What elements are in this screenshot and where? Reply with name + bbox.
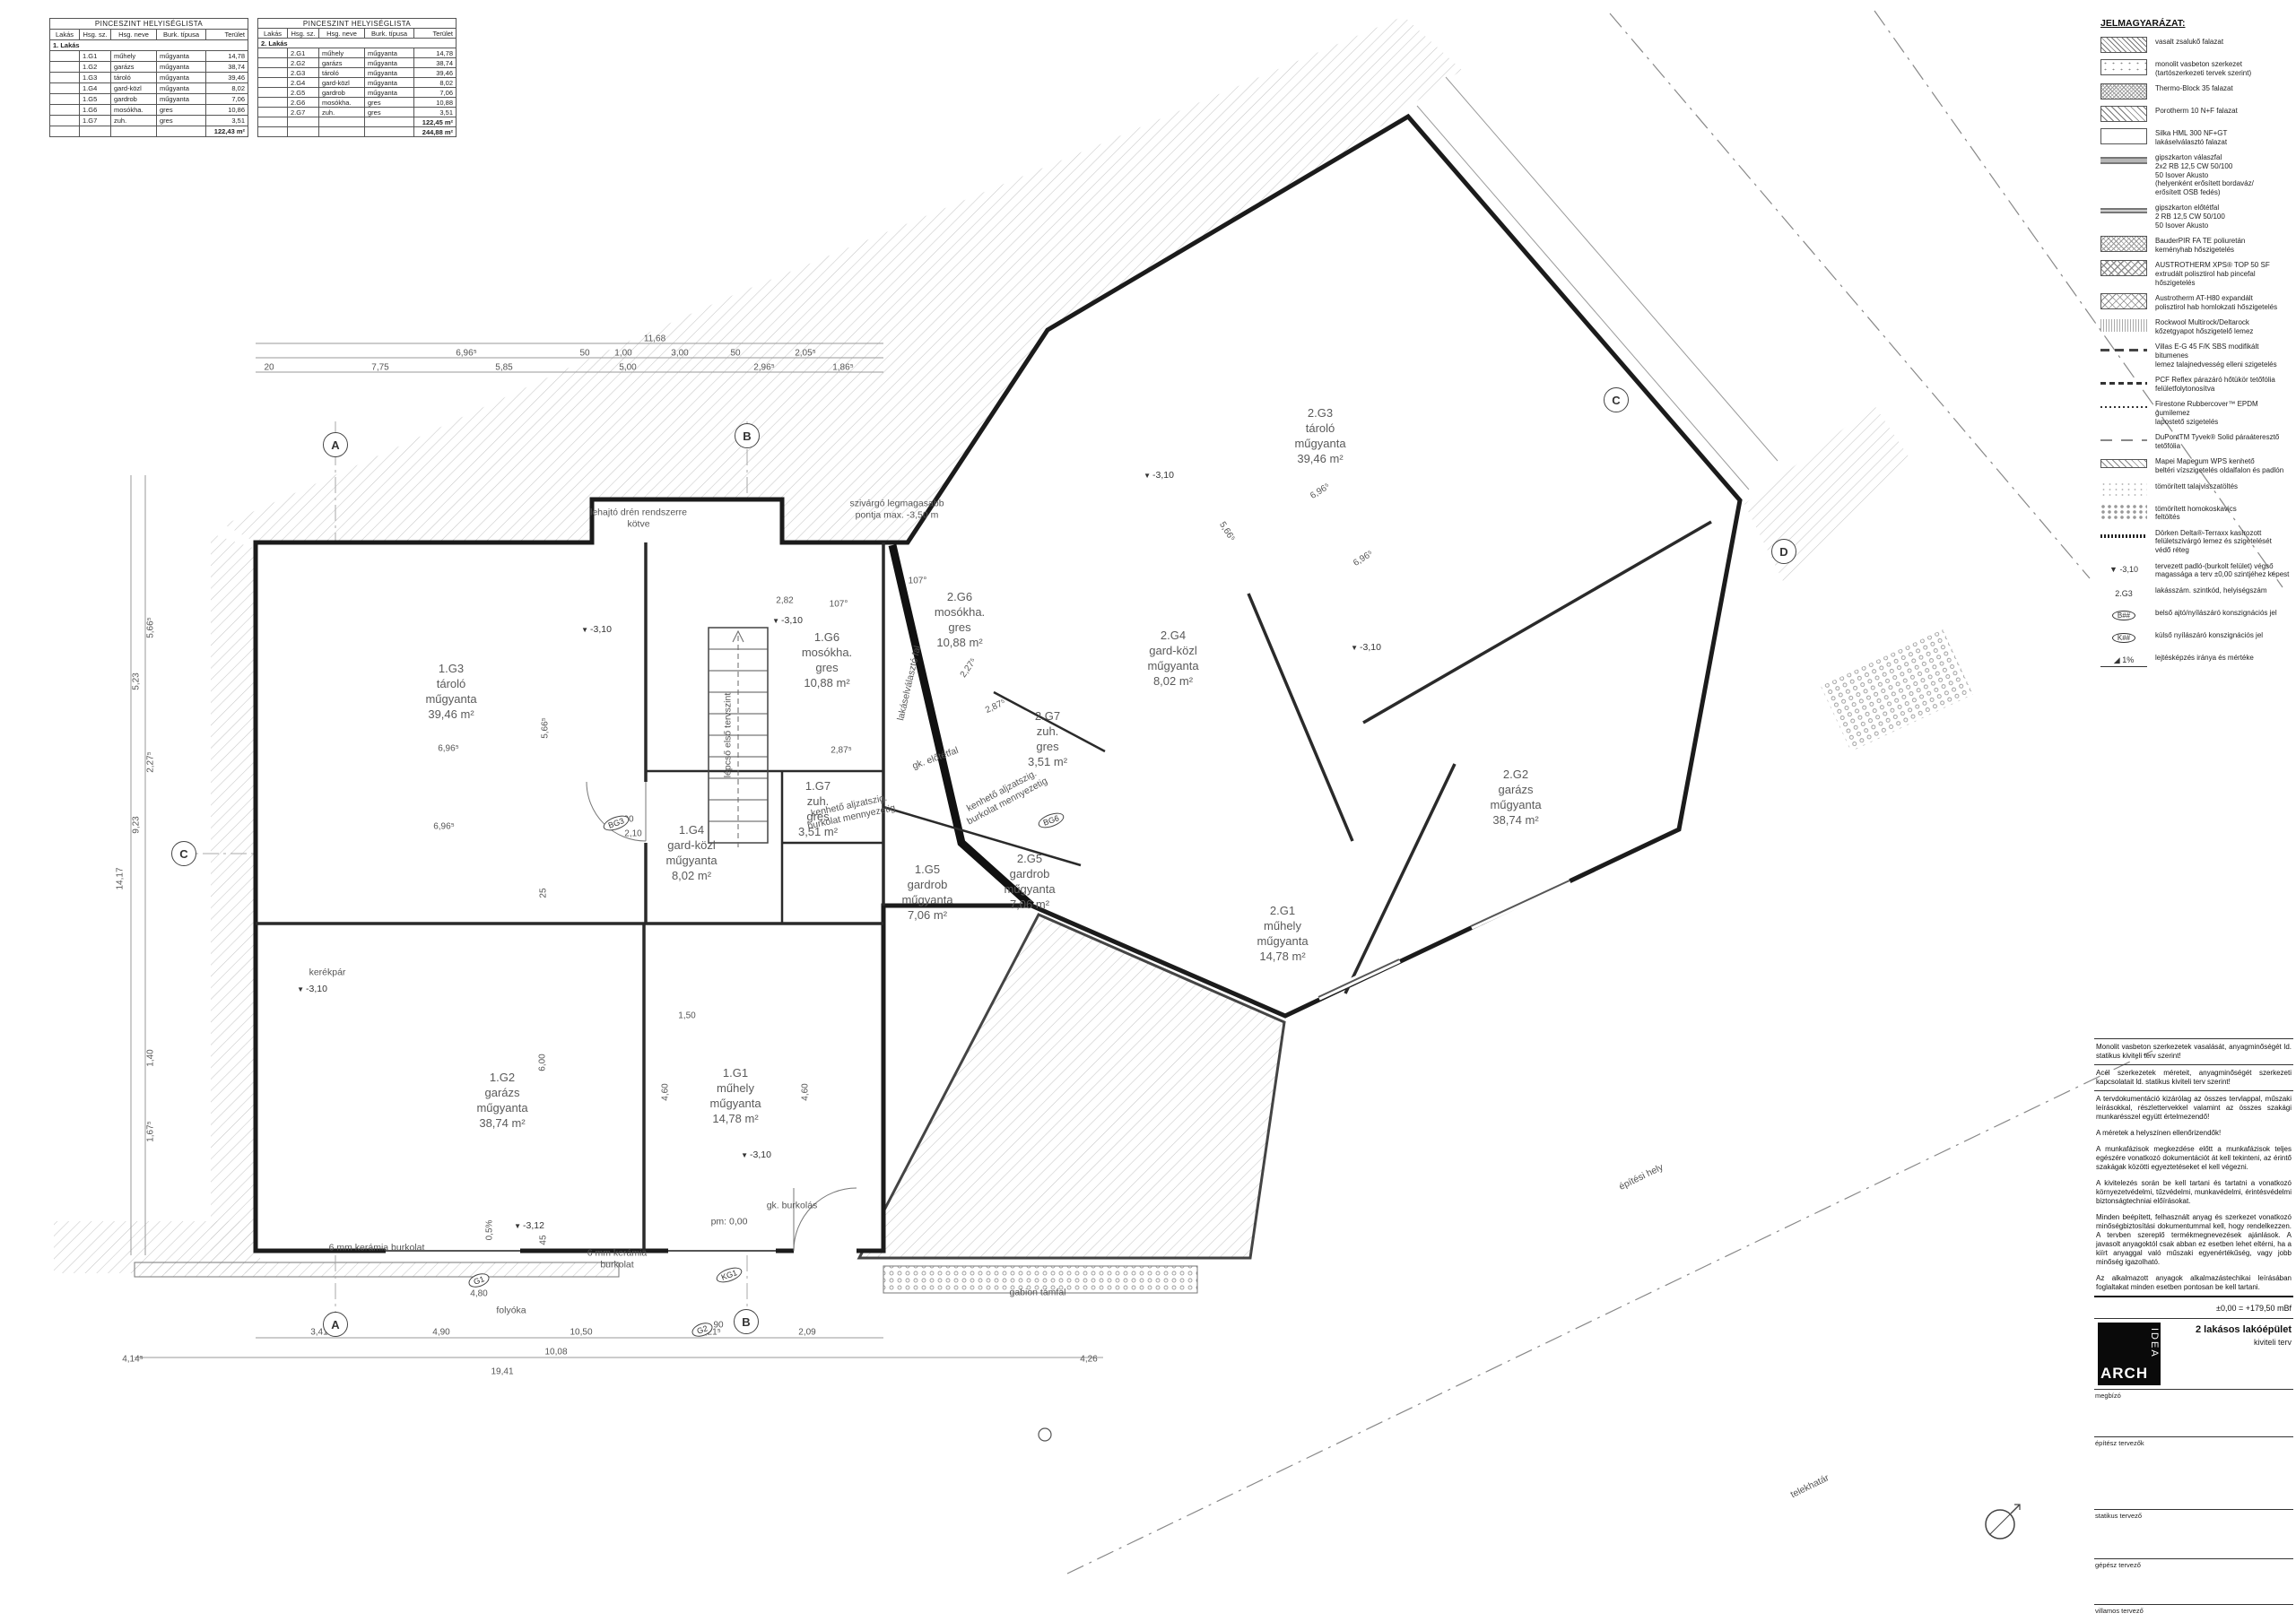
- legend-item-label: Silka HML 300 NF+GT lakáselválasztó fala…: [2155, 127, 2227, 146]
- legend-item: DuPontTM Tyvek® Solid páraáteresztő tető…: [2100, 431, 2292, 450]
- legend-item: AUSTROTHERM XPS® TOP 50 SF extrudált pol…: [2100, 259, 2292, 287]
- note-paragraph: Acél szerkezetek méreteit, anyagminőségé…: [2094, 1065, 2293, 1091]
- title-block-role: gépész tervező: [2094, 1559, 2293, 1605]
- legend-item-label: vasalt zsalukő falazat: [2155, 36, 2223, 47]
- legend-item-label: DuPontTM Tyvek® Solid páraáteresztő tető…: [2155, 431, 2279, 450]
- legend-item-label: BauderPIR FA TE poliuretán keményhab hős…: [2155, 235, 2245, 254]
- legend-item: Villas E-G 45 F/K SBS modifikált bitumen…: [2100, 341, 2292, 369]
- legend-item-label: belső ajtó/nyílászáró konszignációs jel: [2155, 607, 2277, 618]
- slope-swatch-icon: ◢ 1%: [2100, 655, 2147, 667]
- north-symbol: [1986, 1505, 2020, 1539]
- legend-item: monolit vasbeton szerkezet (tartószerkez…: [2100, 58, 2292, 77]
- gkt2-swatch-icon: [2100, 157, 2147, 164]
- legend-item-label: monolit vasbeton szerkezet (tartószerkez…: [2155, 58, 2251, 77]
- pir-swatch-icon: [2100, 236, 2147, 252]
- poro-swatch-icon: [2100, 106, 2147, 122]
- legend-item: BauderPIR FA TE poliuretán keményhab hős…: [2100, 235, 2292, 254]
- legend-item: Firestone Rubbercover™ EPDM gumilemez la…: [2100, 398, 2292, 426]
- block-swatch-icon: [2100, 83, 2147, 100]
- legend-item-label: lakásszám. szintkód, helyiségszám: [2155, 585, 2267, 595]
- legend-item: tömörített talajvisszatöltés: [2100, 481, 2292, 498]
- legend-item: ◢ 1%lejtésképzés iránya és mértéke: [2100, 652, 2292, 667]
- oval-swatch-icon: B##: [2100, 608, 2147, 624]
- legend-item: gipszkarton előtétfal 2 RB 12,5 CW 50/10…: [2100, 202, 2292, 230]
- note-paragraph: A méretek a helyszínen ellenőrizendők!: [2094, 1125, 2293, 1141]
- legend-item: Porotherm 10 N+F falazat: [2100, 105, 2292, 122]
- hatch45-swatch-icon: [2100, 37, 2147, 53]
- project-phase: kiviteli terv: [2166, 1338, 2292, 1347]
- fill-swatch-icon: [2100, 481, 2147, 498]
- gravel-wall-right: [1821, 629, 1973, 751]
- pcf-swatch-icon: [2100, 382, 2147, 385]
- legend-item-label: tervezett padló-(burkolt felület) végső …: [2155, 560, 2289, 579]
- legend-item-label: Rockwool Multirock/Deltarock kőzetgyapot…: [2155, 317, 2253, 335]
- title-block: ARCH IDEA 2 lakásos lakóépület kiviteli …: [2094, 1318, 2293, 1622]
- legend-item: ▼ -3,10tervezett padló-(burkolt felület)…: [2100, 560, 2292, 579]
- gabion-wall: [883, 1266, 1197, 1293]
- legend-item: vasalt zsalukő falazat: [2100, 36, 2292, 53]
- eps-swatch-icon: [2100, 293, 2147, 309]
- note-paragraph: A munkafázisok megkezdése előtt a munkaf…: [2094, 1141, 2293, 1175]
- legend-panel: JELMAGYARÁZAT: vasalt zsalukő falazatmon…: [2100, 18, 2292, 672]
- legend-item-label: Dörken Delta®-Terraxx kasírozott felület…: [2155, 527, 2272, 555]
- right-column: Monolit vasbeton szerkezetek vasalását, …: [2094, 1038, 2293, 1622]
- legend-item-label: Porotherm 10 N+F falazat: [2155, 105, 2238, 116]
- legend-item: 2.G3lakásszám. szintkód, helyiségszám: [2100, 585, 2292, 602]
- mapei-swatch-icon: [2100, 459, 2147, 468]
- legend-item-label: tömörített talajvisszatöltés: [2155, 481, 2238, 491]
- folyoka-channel: [135, 1262, 619, 1277]
- legend-item: Mapei Mapegum WPS kenhető beltéri vízszi…: [2100, 455, 2292, 474]
- legend-item: K##külső nyílászáró konszignációs jel: [2100, 629, 2292, 646]
- room-list-table: PINCESZINT HELYISÉGLISTALakásHsg. sz.Hsg…: [49, 18, 248, 137]
- legend-item: Dörken Delta®-Terraxx kasírozott felület…: [2100, 527, 2292, 555]
- title-block-role: statikus tervező: [2094, 1510, 2293, 1559]
- txt-swatch-icon: 2.G3: [2100, 585, 2147, 602]
- legend-item: Rockwool Multirock/Deltarock kőzetgyapot…: [2100, 317, 2292, 335]
- title-block-role: megbízó: [2094, 1390, 2293, 1437]
- title-block-role: villamos tervező: [2094, 1605, 2293, 1622]
- title-block-roles: megbízóépítész tervezőkstatikus tervezőg…: [2094, 1390, 2293, 1622]
- room-list-panel: PINCESZINT HELYISÉGLISTALakásHsg. sz.Hsg…: [49, 18, 457, 137]
- legend-item: Austrotherm AT-H80 expandált polisztirol…: [2100, 292, 2292, 311]
- legend-item: gipszkarton válaszfal 2x2 RB 12,5 CW 50/…: [2100, 152, 2292, 196]
- xps-swatch-icon: [2100, 260, 2147, 276]
- notes-panel: Monolit vasbeton szerkezetek vasalását, …: [2094, 1038, 2293, 1296]
- txt-swatch-icon: ▼ -3,10: [2100, 561, 2147, 577]
- note-paragraph: Monolit vasbeton szerkezetek vasalását, …: [2094, 1039, 2293, 1065]
- legend-item-label: gipszkarton válaszfal 2x2 RB 12,5 CW 50/…: [2155, 152, 2254, 196]
- legend-item-label: Austrotherm AT-H80 expandált polisztirol…: [2155, 292, 2277, 311]
- note-paragraph: A tervdokumentáció kizárólag az összes t…: [2094, 1091, 2293, 1125]
- legend-title: JELMAGYARÁZAT:: [2100, 18, 2292, 29]
- legend-item-label: Thermo-Block 35 falazat: [2155, 82, 2233, 93]
- legend-item: PCF Reflex párazáró hőtükör tetőfólia fe…: [2100, 374, 2292, 393]
- legend-item: tömörített homokoskavics feltöltés: [2100, 503, 2292, 522]
- plain-swatch-icon: [2100, 128, 2147, 144]
- legend-list: vasalt zsalukő falazatmonolit vasbeton s…: [2100, 36, 2292, 667]
- project-name: 2 lakásos lakóépület: [2166, 1324, 2292, 1335]
- note-paragraph: A kivitelezés során be kell tartani és t…: [2094, 1175, 2293, 1210]
- concrete-swatch-icon: [2100, 59, 2147, 75]
- gravel-swatch-icon: [2100, 504, 2147, 520]
- legend-item-label: külső nyílászáró konszignációs jel: [2155, 629, 2263, 640]
- terrain-hatch-left: [211, 533, 256, 1280]
- legend-item-label: tömörített homokoskavics feltöltés: [2155, 503, 2237, 522]
- legend-item-label: gipszkarton előtétfal 2 RB 12,5 CW 50/10…: [2155, 202, 2225, 230]
- survey-point: [1039, 1428, 1051, 1441]
- legend-item-label: AUSTROTHERM XPS® TOP 50 SF extrudált pol…: [2155, 259, 2292, 287]
- title-block-role: építész tervezők: [2094, 1437, 2293, 1510]
- legend-item: B##belső ajtó/nyílászáró konszignációs j…: [2100, 607, 2292, 624]
- legend-item-label: PCF Reflex párazáró hőtükör tetőfólia fe…: [2155, 374, 2275, 393]
- note-paragraph: Minden beépített, felhasznált anyag és s…: [2094, 1210, 2293, 1271]
- note-paragraph: Az alkalmazott anyagok alkalmazástechika…: [2094, 1271, 2293, 1296]
- floor-plan: [0, 0, 2296, 1622]
- legend-item-label: Firestone Rubbercover™ EPDM gumilemez la…: [2155, 398, 2292, 426]
- room-list-table: PINCESZINT HELYISÉGLISTALakásHsg. sz.Hsg…: [257, 18, 457, 137]
- tyvek-swatch-icon: [2100, 439, 2147, 441]
- legend-item-label: lejtésképzés iránya és mértéke: [2155, 652, 2254, 663]
- drawing-sheet: 1.G3tárolóműgyanta39,46 m²1.G6mosókha.gr…: [0, 0, 2296, 1622]
- legend-item: Thermo-Block 35 falazat: [2100, 82, 2292, 100]
- oval-swatch-icon: K##: [2100, 630, 2147, 646]
- legend-item-label: Villas E-G 45 F/K SBS modifikált bitumen…: [2155, 341, 2292, 369]
- rock-swatch-icon: [2100, 319, 2147, 332]
- terrain-hatch-right: [1744, 405, 1910, 581]
- legend-item: Silka HML 300 NF+GT lakáselválasztó fala…: [2100, 127, 2292, 146]
- drain-swatch-icon: [2100, 534, 2147, 538]
- archidea-logo: ARCH IDEA: [2098, 1323, 2161, 1385]
- bit-swatch-icon: [2100, 349, 2147, 351]
- epdm-swatch-icon: [2100, 406, 2147, 408]
- gkt1-swatch-icon: [2100, 208, 2147, 213]
- elevation-datum: ±0,00 = +179,50 mBf: [2094, 1296, 2293, 1318]
- legend-item-label: Mapei Mapegum WPS kenhető beltéri vízszi…: [2155, 455, 2283, 474]
